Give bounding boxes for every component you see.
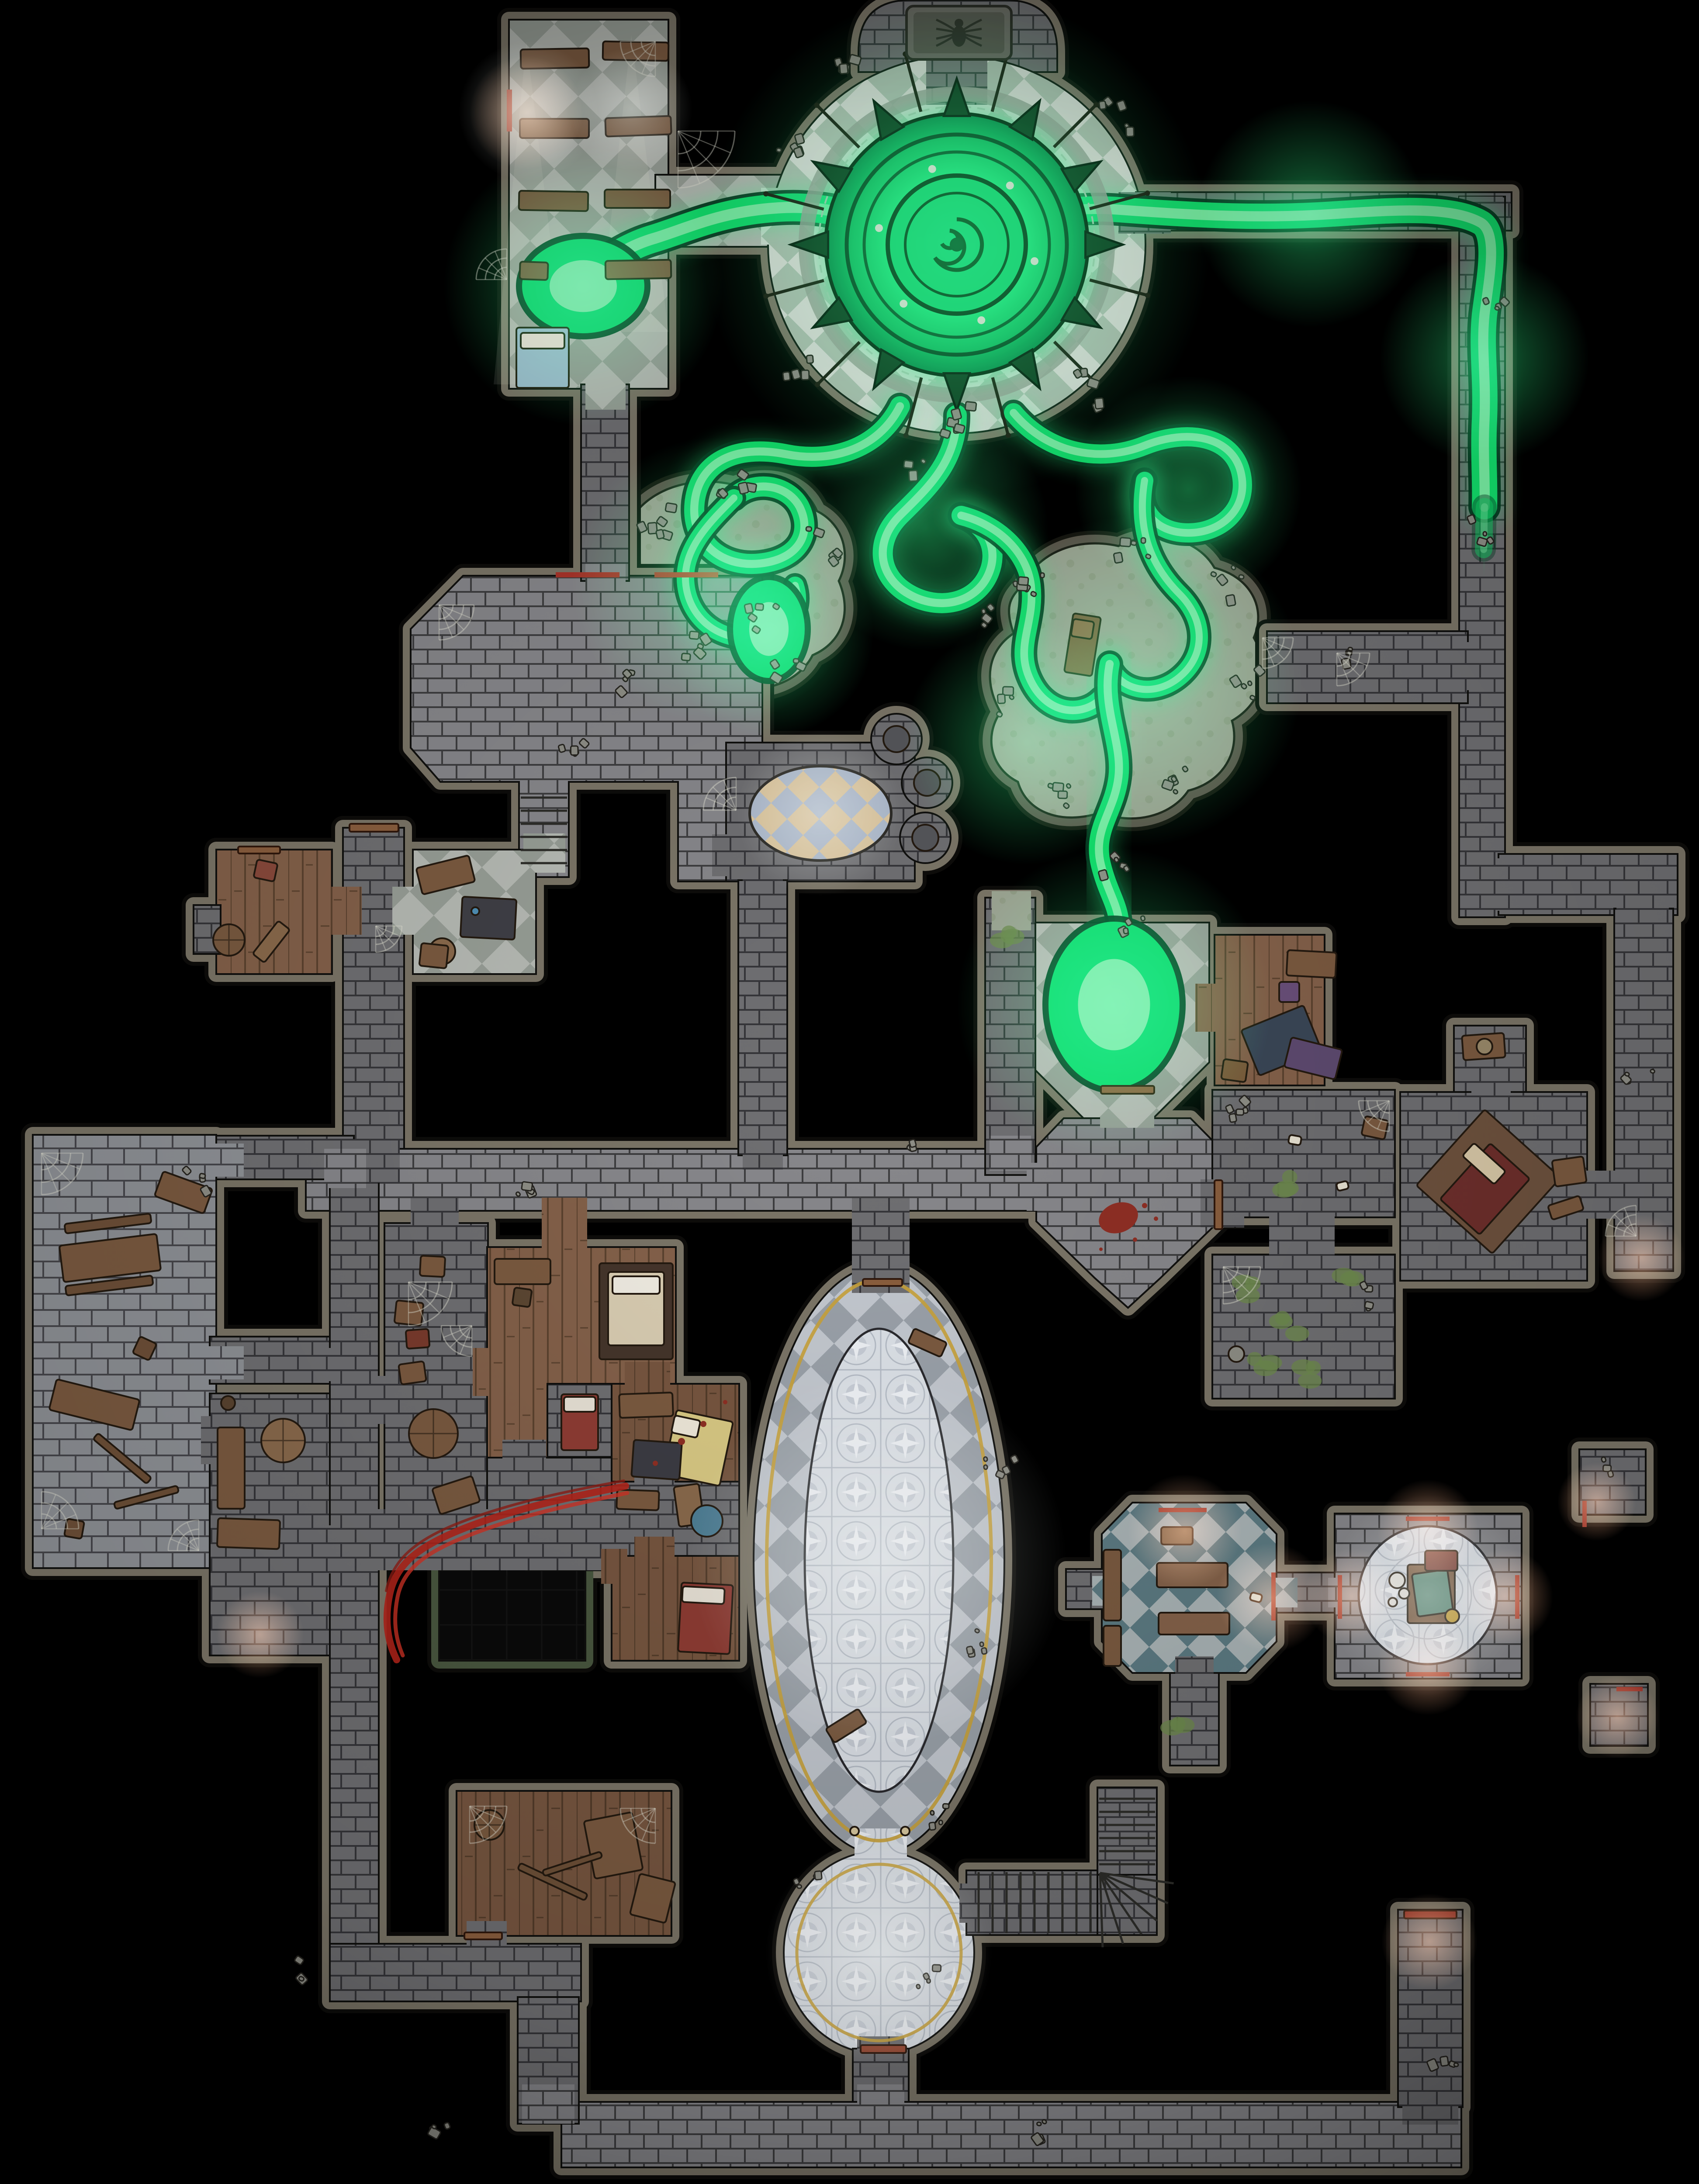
candle	[901, 1827, 910, 1835]
clock	[1445, 1609, 1459, 1623]
portal-spear-tip	[903, 433, 909, 438]
gem	[471, 907, 479, 915]
red-trim-library	[507, 90, 512, 131]
dining-rug	[750, 766, 891, 860]
rubble	[571, 746, 578, 755]
well	[883, 726, 910, 752]
rubble	[1364, 1301, 1374, 1309]
bottom-corridor	[561, 2102, 1461, 2167]
door-leg2-dining	[712, 834, 756, 876]
bookshelf	[520, 119, 589, 138]
sconce-map-s	[1406, 1672, 1450, 1676]
rubble	[954, 423, 965, 433]
door-f-b	[324, 1348, 366, 1381]
trophy	[221, 1396, 235, 1410]
door-junk	[464, 1932, 502, 1939]
well	[914, 770, 940, 796]
rubble	[806, 527, 812, 532]
door-messhall-g	[202, 1144, 244, 1177]
corner-ev-e2	[1472, 858, 1525, 911]
table	[217, 1518, 280, 1549]
rubble	[1114, 552, 1123, 563]
link-ovalsc-bottom	[857, 2084, 904, 2124]
well	[912, 825, 938, 851]
bones	[1389, 1572, 1405, 1588]
rubble	[1601, 1457, 1606, 1462]
blood-drip	[653, 1461, 658, 1466]
moss-patch	[1298, 1373, 1322, 1389]
door-slimepit	[1101, 1086, 1154, 1094]
rubble	[1095, 398, 1104, 409]
red-trim-hall-2	[654, 572, 718, 577]
rubble	[1229, 1113, 1237, 1123]
rubble	[1440, 2056, 1449, 2066]
portal-bone	[977, 316, 985, 324]
rug	[460, 897, 517, 940]
rubble	[903, 460, 913, 469]
rubble	[983, 1465, 987, 1469]
rubble	[981, 1648, 987, 1654]
rubble	[966, 1646, 974, 1654]
portal-bone	[1006, 182, 1014, 190]
sideboard	[1104, 1550, 1121, 1621]
corridor-a	[343, 828, 404, 1160]
bookshelf	[519, 191, 588, 211]
hoop	[1477, 1039, 1492, 1054]
sconce-map-e	[1515, 1575, 1519, 1619]
sconce-map-n	[1406, 1517, 1450, 1521]
rubble	[738, 482, 748, 494]
rubble	[1141, 538, 1145, 543]
door-south-lower	[601, 1549, 627, 1584]
portal-spear-tip	[1006, 432, 1011, 438]
door-br-corridor	[1404, 1911, 1457, 1918]
bones	[1399, 1588, 1409, 1599]
rubble	[791, 369, 801, 380]
rubble	[909, 1139, 916, 1148]
bookshelf	[605, 116, 671, 136]
sconce-red1	[1582, 1501, 1587, 1527]
rubble	[1010, 1455, 1019, 1464]
crate-berries	[406, 1329, 430, 1349]
rubble	[1126, 127, 1134, 137]
cloth	[253, 859, 278, 881]
brazier-chapel-n	[1159, 1508, 1207, 1512]
red-trim-hall-1	[556, 572, 619, 577]
rubble	[916, 1984, 920, 1989]
rubble	[814, 1871, 822, 1880]
rubble	[965, 401, 976, 411]
rubble	[939, 1820, 942, 1825]
door-b-storage	[366, 1376, 405, 1424]
rubble	[783, 372, 791, 381]
counter	[218, 1427, 245, 1509]
chair	[512, 1287, 532, 1307]
door-wash-lower	[634, 1537, 675, 1576]
door-oval-stairs	[959, 1883, 1003, 1923]
rubble	[1454, 2063, 1459, 2067]
rubble	[1037, 2122, 1042, 2126]
corridor-b	[330, 1179, 379, 1996]
portal-bone	[875, 224, 883, 232]
moss-patch	[1282, 1170, 1298, 1185]
moss-patch	[1272, 1182, 1296, 1198]
rubble	[932, 1965, 941, 1972]
moss-patch	[1332, 1268, 1355, 1283]
corridor-c	[738, 880, 787, 1155]
bookshelf	[519, 262, 548, 280]
red-cell-1	[1579, 1449, 1646, 1515]
rubble	[1236, 1109, 1244, 1115]
rubble	[1099, 101, 1106, 110]
pillow	[564, 1397, 595, 1412]
rubble	[840, 64, 848, 74]
portal-spear-tip	[815, 382, 820, 387]
portal-spear-tip	[1093, 102, 1099, 107]
rubble	[797, 1885, 801, 1889]
rubble	[1040, 573, 1044, 578]
pit-slime-pool-core	[1078, 959, 1150, 1051]
rubble	[682, 653, 691, 661]
door-main-bedroom-nw	[542, 1198, 587, 1268]
door-slimepit-bedroom	[1195, 984, 1235, 1032]
dungeon-map-svg[interactable]	[0, 0, 1699, 2184]
blood-drip	[1142, 1203, 1147, 1208]
link-storage-moss	[1269, 1202, 1335, 1272]
red-cell-2	[1590, 1684, 1648, 1746]
bucket	[1228, 1346, 1244, 1362]
blood-drip	[1099, 1248, 1103, 1251]
rubble	[755, 603, 764, 610]
table-bloody	[619, 1393, 673, 1418]
moss-patch	[1000, 929, 1024, 944]
door-g-main	[324, 1149, 366, 1188]
portal-bone	[1031, 257, 1038, 265]
door-main-corr-b	[334, 1188, 374, 1236]
link-chapel-south	[1175, 1656, 1214, 1696]
bookshelf	[603, 41, 669, 61]
stair-up	[1097, 1787, 1157, 1875]
rubble	[1140, 916, 1145, 921]
bookshelf	[605, 190, 670, 208]
crate	[584, 1812, 643, 1879]
bench	[1157, 1563, 1228, 1587]
chair	[1279, 982, 1299, 1002]
rubble	[801, 370, 809, 380]
rubble	[444, 2122, 451, 2129]
bench	[1159, 1613, 1229, 1635]
rubble	[294, 1956, 304, 1965]
portal-spear-tip	[764, 294, 769, 299]
rubble	[1058, 791, 1067, 798]
door-storage-bedroom	[473, 1348, 510, 1396]
rubble	[1098, 869, 1109, 881]
door-corr-d-library	[585, 370, 626, 410]
rubble	[1650, 1069, 1655, 1073]
rubble	[665, 503, 677, 513]
rubble	[980, 1642, 984, 1647]
door-bedroomnw-south	[502, 1440, 546, 1478]
basket	[1221, 1059, 1248, 1082]
portal-bone	[900, 300, 907, 308]
rug	[631, 1440, 682, 1479]
link-b-blh	[334, 1948, 374, 1992]
rubble	[689, 631, 699, 639]
rubble	[1120, 538, 1131, 547]
door-oval-south	[861, 2045, 906, 2053]
rubble	[199, 1173, 206, 1179]
rubble	[1624, 1072, 1630, 1077]
door-woodstore	[238, 847, 280, 854]
pillow	[521, 333, 564, 349]
ritual-portal	[747, 35, 1166, 454]
rubble	[806, 355, 813, 363]
rubble	[1123, 865, 1130, 872]
spider-body-icon	[952, 26, 966, 47]
crate	[419, 943, 448, 968]
sconce-red2	[1616, 1687, 1643, 1691]
spider-plaque	[907, 6, 1011, 59]
link-bottom-brv	[1402, 2084, 1458, 2125]
pillow	[612, 1276, 660, 1294]
rubble	[1608, 1470, 1614, 1477]
link-corr-e-cave	[992, 891, 1031, 930]
blood-drip	[1133, 1237, 1137, 1242]
sconce-map-w	[1338, 1575, 1342, 1619]
door-main-storage	[411, 1198, 459, 1244]
rubble	[920, 458, 927, 464]
dungeon-map[interactable]	[0, 0, 1699, 2184]
rubble	[1117, 100, 1127, 111]
portal-spear-tip	[1145, 190, 1150, 196]
door-leg1-checkered	[523, 833, 565, 873]
moss-patch	[1305, 1361, 1321, 1375]
passage-west	[339, 1509, 614, 1570]
rubble	[930, 1811, 934, 1815]
pillow	[682, 1586, 725, 1604]
portal-spear-tip	[763, 191, 768, 197]
paper	[1249, 1592, 1263, 1603]
bookshelf	[521, 48, 589, 69]
rubble	[776, 148, 782, 152]
link-blv-bottom	[522, 2084, 574, 2124]
brazier-chapel-e	[1271, 1572, 1276, 1621]
rubble	[558, 744, 565, 753]
door-corr-d-hall	[585, 563, 626, 597]
rubble	[997, 694, 1005, 704]
moss-patch	[1269, 1313, 1293, 1329]
rubble	[1018, 577, 1029, 585]
rubble	[1131, 540, 1136, 546]
rubble	[1052, 782, 1064, 791]
rubble	[522, 1182, 533, 1191]
rubble	[929, 1822, 935, 1830]
chair	[1425, 1551, 1457, 1571]
door-corr-c-main	[743, 1135, 783, 1170]
rubble	[744, 603, 754, 614]
crate	[398, 1361, 426, 1385]
door-corr-e-main	[990, 1136, 1031, 1171]
bookshelf	[606, 260, 671, 280]
rubble	[1225, 594, 1235, 606]
grand-oval-inner-floor	[805, 1329, 953, 1792]
junction-ev-stub	[1437, 642, 1485, 690]
rubble	[943, 1804, 949, 1808]
desk	[495, 1259, 550, 1284]
door-messhall-f	[202, 1346, 244, 1379]
rubble	[981, 608, 986, 614]
dining-rug-oval	[750, 766, 891, 860]
rubble	[1483, 532, 1487, 536]
rubble	[909, 470, 918, 481]
portal-spear-tip	[814, 103, 820, 108]
corridor-hall-north	[581, 384, 629, 581]
rubble	[986, 603, 995, 612]
door-junk-corridor	[467, 1921, 507, 1965]
desk	[1287, 950, 1337, 978]
door-nursery-bedroom	[1471, 1079, 1511, 1118]
portal-center	[950, 238, 964, 252]
bones	[1388, 1598, 1397, 1607]
moss-patch	[1285, 1326, 1309, 1341]
candle	[850, 1827, 859, 1835]
rubble	[793, 659, 799, 663]
basin	[691, 1505, 723, 1537]
blood-drip	[723, 1400, 727, 1404]
sideboard	[1104, 1626, 1121, 1666]
door-oval-north	[863, 1279, 902, 1286]
rubble	[1123, 928, 1128, 934]
blood-drip	[700, 1421, 706, 1427]
moss-patch	[1258, 1355, 1282, 1371]
table-small	[1161, 1527, 1193, 1545]
door-junction-east	[1215, 1180, 1222, 1229]
crate	[420, 1256, 445, 1277]
portal-spear-tip	[1145, 293, 1150, 298]
portal-bone	[928, 165, 936, 173]
br-corridor-v	[1398, 1910, 1463, 2107]
blood-drip	[678, 1438, 685, 1445]
paper	[1288, 1135, 1301, 1146]
moss-patch	[1160, 1720, 1184, 1735]
corner-e2-ev2	[1616, 863, 1669, 911]
map-sheet	[1412, 1569, 1453, 1617]
rubble	[656, 529, 664, 539]
rubble	[983, 1457, 988, 1462]
door-junction-main	[1027, 1163, 1066, 1211]
spider-head-icon	[955, 19, 963, 28]
door-corr-a-wood	[318, 887, 362, 935]
blood-drip	[1154, 1216, 1158, 1221]
door-corr-a	[349, 824, 398, 832]
crate	[1552, 1156, 1587, 1186]
rubble	[1239, 574, 1244, 579]
coffin-lid	[1071, 619, 1094, 639]
paper	[1336, 1181, 1349, 1191]
rubble	[951, 408, 962, 420]
